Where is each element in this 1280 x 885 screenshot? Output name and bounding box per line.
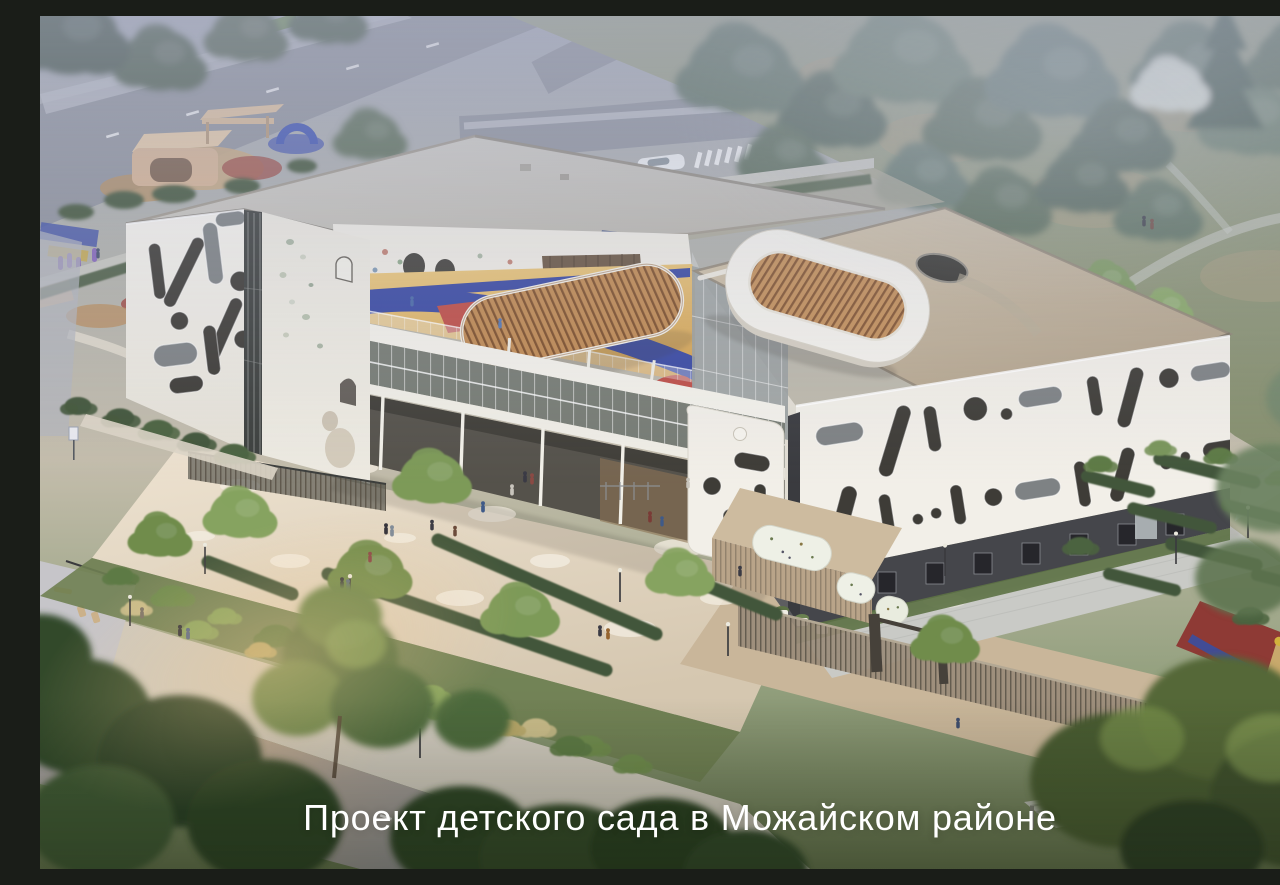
architectural-render: Проект детского сада в Можайском районе [40,16,1280,869]
atmosphere [40,16,1280,869]
scene [40,16,1280,869]
image-caption: Проект детского сада в Можайском районе [303,797,1057,839]
